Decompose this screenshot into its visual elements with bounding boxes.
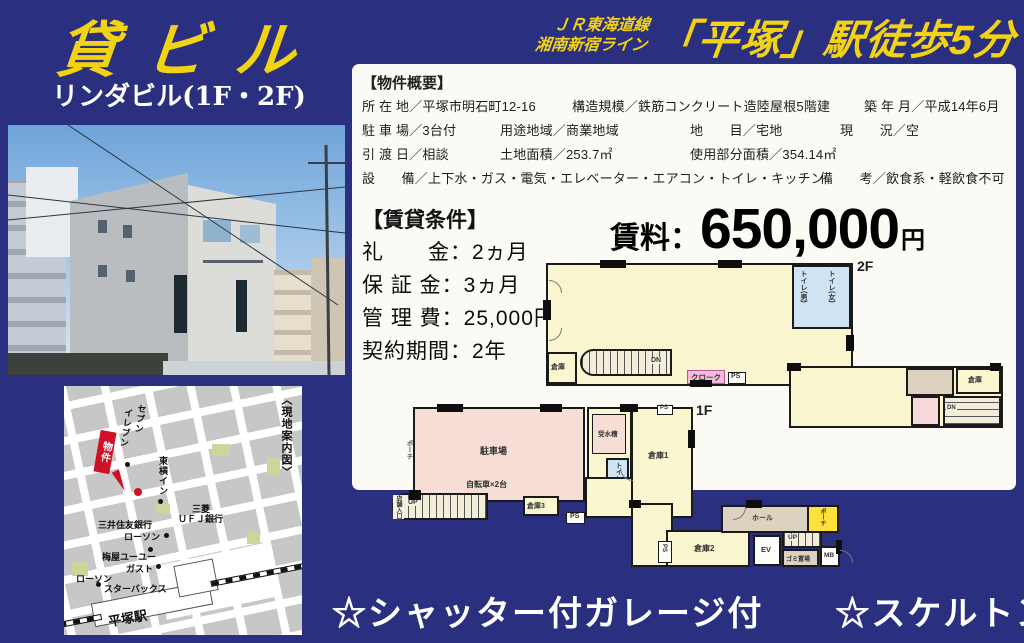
plan1f-corridor: [585, 477, 633, 518]
building-photo: [8, 125, 345, 375]
station-walk-text: 「平塚」駅徒歩5分: [653, 6, 1020, 66]
location-map: 物件 〈現地案内図〉 セブン イレブン 東横イン 三井住友銀行 ローソン 三菱 …: [64, 386, 302, 635]
map-label-lawson-1: ローソン: [124, 530, 160, 543]
rail-lines: ＪＲ東海道線 湘南新宿ライン: [534, 16, 651, 56]
wall-segment: [990, 363, 1001, 371]
plan1f-bicycle-label: 自転車×2台: [466, 479, 507, 490]
overview-land-area: 土地面積／253.7㎡: [500, 144, 613, 163]
map-dot-gusto: [156, 564, 161, 569]
rent-label: 賃料：: [610, 213, 700, 257]
wall-segment: [540, 404, 562, 412]
plan2f-storage-label: 倉庫: [551, 362, 565, 372]
overview-remarks: 備 考／飲食系・軽飲食不可: [820, 168, 1005, 187]
plan1f-tank-label: 受水槽: [598, 428, 618, 438]
lease-deposit: 保 証 金：3ヵ月: [362, 269, 520, 299]
plan1f-porch-right-label: ポーチ: [818, 508, 827, 526]
map-dot-umeya: [148, 547, 153, 552]
property-flag-label: 物件: [96, 440, 115, 464]
overview-handover: 引 渡 日／相談: [362, 144, 449, 163]
map-dot-seven-eleven: [125, 462, 130, 467]
plan1f-storage1-label: 倉庫1: [648, 450, 668, 461]
overview-parking: 駐 車 場／3台付: [362, 120, 456, 139]
overview-floor-area: 使用部分面積／354.14㎡: [690, 144, 837, 163]
rail-line-1: ＪＲ東海道線: [536, 16, 650, 36]
map-label-gusto: ガスト: [126, 562, 153, 575]
plan1f-porch-left-label: ポーチ: [403, 440, 413, 460]
plan1f-parking-label: 駐車場: [480, 444, 507, 457]
plan1f-garbage-label: ゴミ置場: [786, 554, 810, 563]
plan1f-up1-label: UP: [407, 499, 419, 506]
plan1f-floor-label: 1F: [696, 402, 712, 418]
bottom-banner: ☆シャッター付ガレージ付 ☆スケルトン: [332, 586, 1022, 635]
overview-land-category: 地 目／宅地: [690, 120, 782, 139]
wall-segment: [620, 404, 638, 412]
plan1f-storage2-label: 倉庫2: [694, 543, 714, 554]
station-header: ＪＲ東海道線 湘南新宿ライン 「平塚」駅徒歩5分: [382, 6, 1019, 66]
plan1f-entrance-label: 店舗入口: [393, 495, 404, 519]
lease-heading: 【賃貸条件】: [362, 204, 488, 234]
plan1f-ps-top-label: PS: [660, 405, 668, 411]
building-name: リンダビル(1F・2F): [14, 76, 344, 113]
map-label-mufg-2: ＵＦＪ銀行: [178, 512, 223, 525]
rail-line-2: 湘南新宿ライン: [534, 36, 648, 56]
plan1f-up2-label: UP: [787, 534, 798, 541]
map-park: [247, 532, 260, 544]
plan2f-ps-label: PS: [731, 373, 740, 380]
plan1f-mb-label: MB: [824, 552, 834, 559]
plan2f-floor-label: 2F: [857, 258, 873, 274]
plan2f-dn2-label: DN: [946, 405, 957, 411]
plan1f-ev-label: EV: [761, 545, 771, 554]
plan1f-ps2-label: PS: [661, 544, 667, 552]
wall-segment: [629, 500, 641, 508]
plan2f-dn-label: DN: [650, 357, 662, 364]
plan1f-storage3-label: 倉庫3: [527, 501, 545, 511]
wall-segment: [543, 300, 551, 320]
map-dot-lawson-2: [96, 582, 101, 587]
wall-segment: [718, 260, 742, 268]
map-label-starbucks: スターバックス: [104, 582, 167, 595]
rent-line: 賃料： 650,000 円: [610, 196, 925, 262]
plan2f-toilet-women-label: トイレ(女): [826, 270, 836, 303]
rent-unit: 円: [901, 220, 925, 255]
lease-contract-term: 契約期間：2年: [362, 335, 507, 365]
map-park: [212, 444, 230, 456]
plan2f-toilet-men-label: トイレ(男): [798, 270, 808, 303]
plan2f-stairs-secondary: [943, 396, 1001, 426]
plan2f-elevator: [911, 396, 940, 426]
plan1f-entrance-stairs: [392, 493, 488, 520]
overview-facilities: 設 備／上下水・ガス・電気・エレベーター・エアコン・トイレ・キッチン: [362, 168, 824, 187]
map-label-toyoko-inn: 東横イン: [157, 456, 170, 496]
plan1f-hall-label: ホール: [752, 513, 773, 523]
overview-address: 所 在 地／平塚市明石町12-16: [362, 96, 536, 115]
wall-segment: [690, 380, 712, 387]
power-lines: [8, 125, 345, 375]
rent-amount: 650,000: [700, 196, 899, 262]
flyer-page: 貸 ビ ル リンダビル(1F・2F) ＪＲ東海道線 湘南新宿ライン 「平塚」駅徒…: [0, 0, 1024, 643]
overview-structure: 構造規模／鉄筋コンクリート造陸屋根5階建: [572, 96, 830, 115]
overview-zoning: 用途地域／商業地域: [500, 120, 619, 139]
overview-heading: 【物件概要】: [362, 72, 452, 93]
map-park: [156, 504, 170, 514]
map-dot-toyoko-inn: [158, 499, 163, 504]
wall-segment: [437, 404, 463, 412]
wall-segment: [746, 500, 762, 508]
wall-segment: [688, 430, 695, 448]
property-location-dot: [134, 488, 142, 496]
wall-segment: [409, 490, 421, 500]
map-caption: 〈現地案内図〉: [278, 394, 294, 478]
wall-segment: [846, 335, 854, 351]
door-arc: [840, 550, 853, 563]
lease-management-fee: 管 理 費：25,000円: [362, 302, 556, 332]
lease-key-money: 礼 金：2ヵ月: [362, 236, 529, 266]
plan2f-storage-right-label: 倉庫: [968, 375, 982, 385]
wall-segment: [600, 260, 626, 268]
overview-built: 築 年 月／平成14年6月: [864, 96, 1000, 115]
plan2f-hall-room: [906, 368, 954, 396]
wall-segment: [787, 363, 801, 371]
overview-status: 現 況／空: [840, 120, 919, 139]
plan1f-ps1-label: PS: [570, 513, 579, 520]
map-dot-lawson-1: [164, 533, 169, 538]
